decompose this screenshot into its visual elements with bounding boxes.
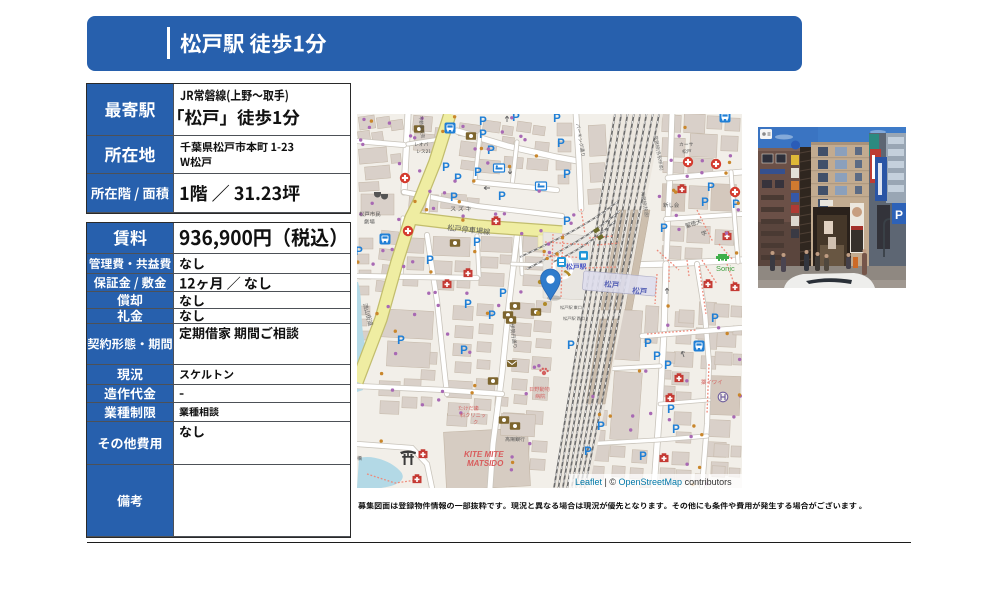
svg-text:P: P: [460, 345, 468, 357]
svg-text:P: P: [557, 138, 565, 150]
svg-text:P: P: [672, 424, 680, 436]
svg-text:P: P: [464, 299, 472, 311]
svg-text:P: P: [639, 451, 647, 463]
svg-text:P: P: [474, 167, 482, 179]
svg-text:P: P: [563, 169, 571, 181]
svg-text:P: P: [442, 162, 450, 174]
svg-text:P: P: [454, 173, 462, 185]
svg-text:P: P: [644, 338, 652, 350]
svg-text:P: P: [479, 129, 487, 141]
svg-text:P: P: [711, 313, 719, 325]
svg-text:P: P: [707, 182, 715, 194]
svg-text:P: P: [512, 114, 520, 124]
svg-text:P: P: [667, 404, 675, 416]
svg-text:P: P: [450, 192, 458, 204]
svg-text:MATSIDO: MATSIDO: [467, 459, 504, 468]
svg-text:P: P: [426, 255, 434, 267]
svg-text:P: P: [895, 208, 903, 222]
svg-text:P: P: [479, 116, 487, 128]
svg-text:P: P: [488, 310, 496, 322]
svg-text:Sonic: Sonic: [716, 264, 735, 273]
svg-text:P: P: [597, 421, 605, 433]
svg-text:Leaflet | © OpenStreetMap cont: Leaflet | © OpenStreetMap contributors: [575, 477, 732, 487]
svg-text:P: P: [653, 351, 661, 363]
svg-text:P: P: [567, 340, 575, 352]
svg-text:P: P: [660, 223, 668, 235]
svg-text:P: P: [473, 237, 481, 249]
svg-text:P: P: [487, 145, 495, 157]
svg-text:P: P: [357, 246, 363, 258]
svg-text:P: P: [701, 197, 709, 209]
svg-text:P: P: [397, 335, 405, 347]
svg-text:P: P: [664, 360, 672, 372]
svg-text:P: P: [498, 191, 506, 203]
svg-text:P: P: [499, 288, 507, 300]
svg-text:P: P: [584, 446, 592, 458]
svg-text:KITE MITE: KITE MITE: [464, 450, 504, 459]
svg-text:P: P: [553, 114, 561, 125]
